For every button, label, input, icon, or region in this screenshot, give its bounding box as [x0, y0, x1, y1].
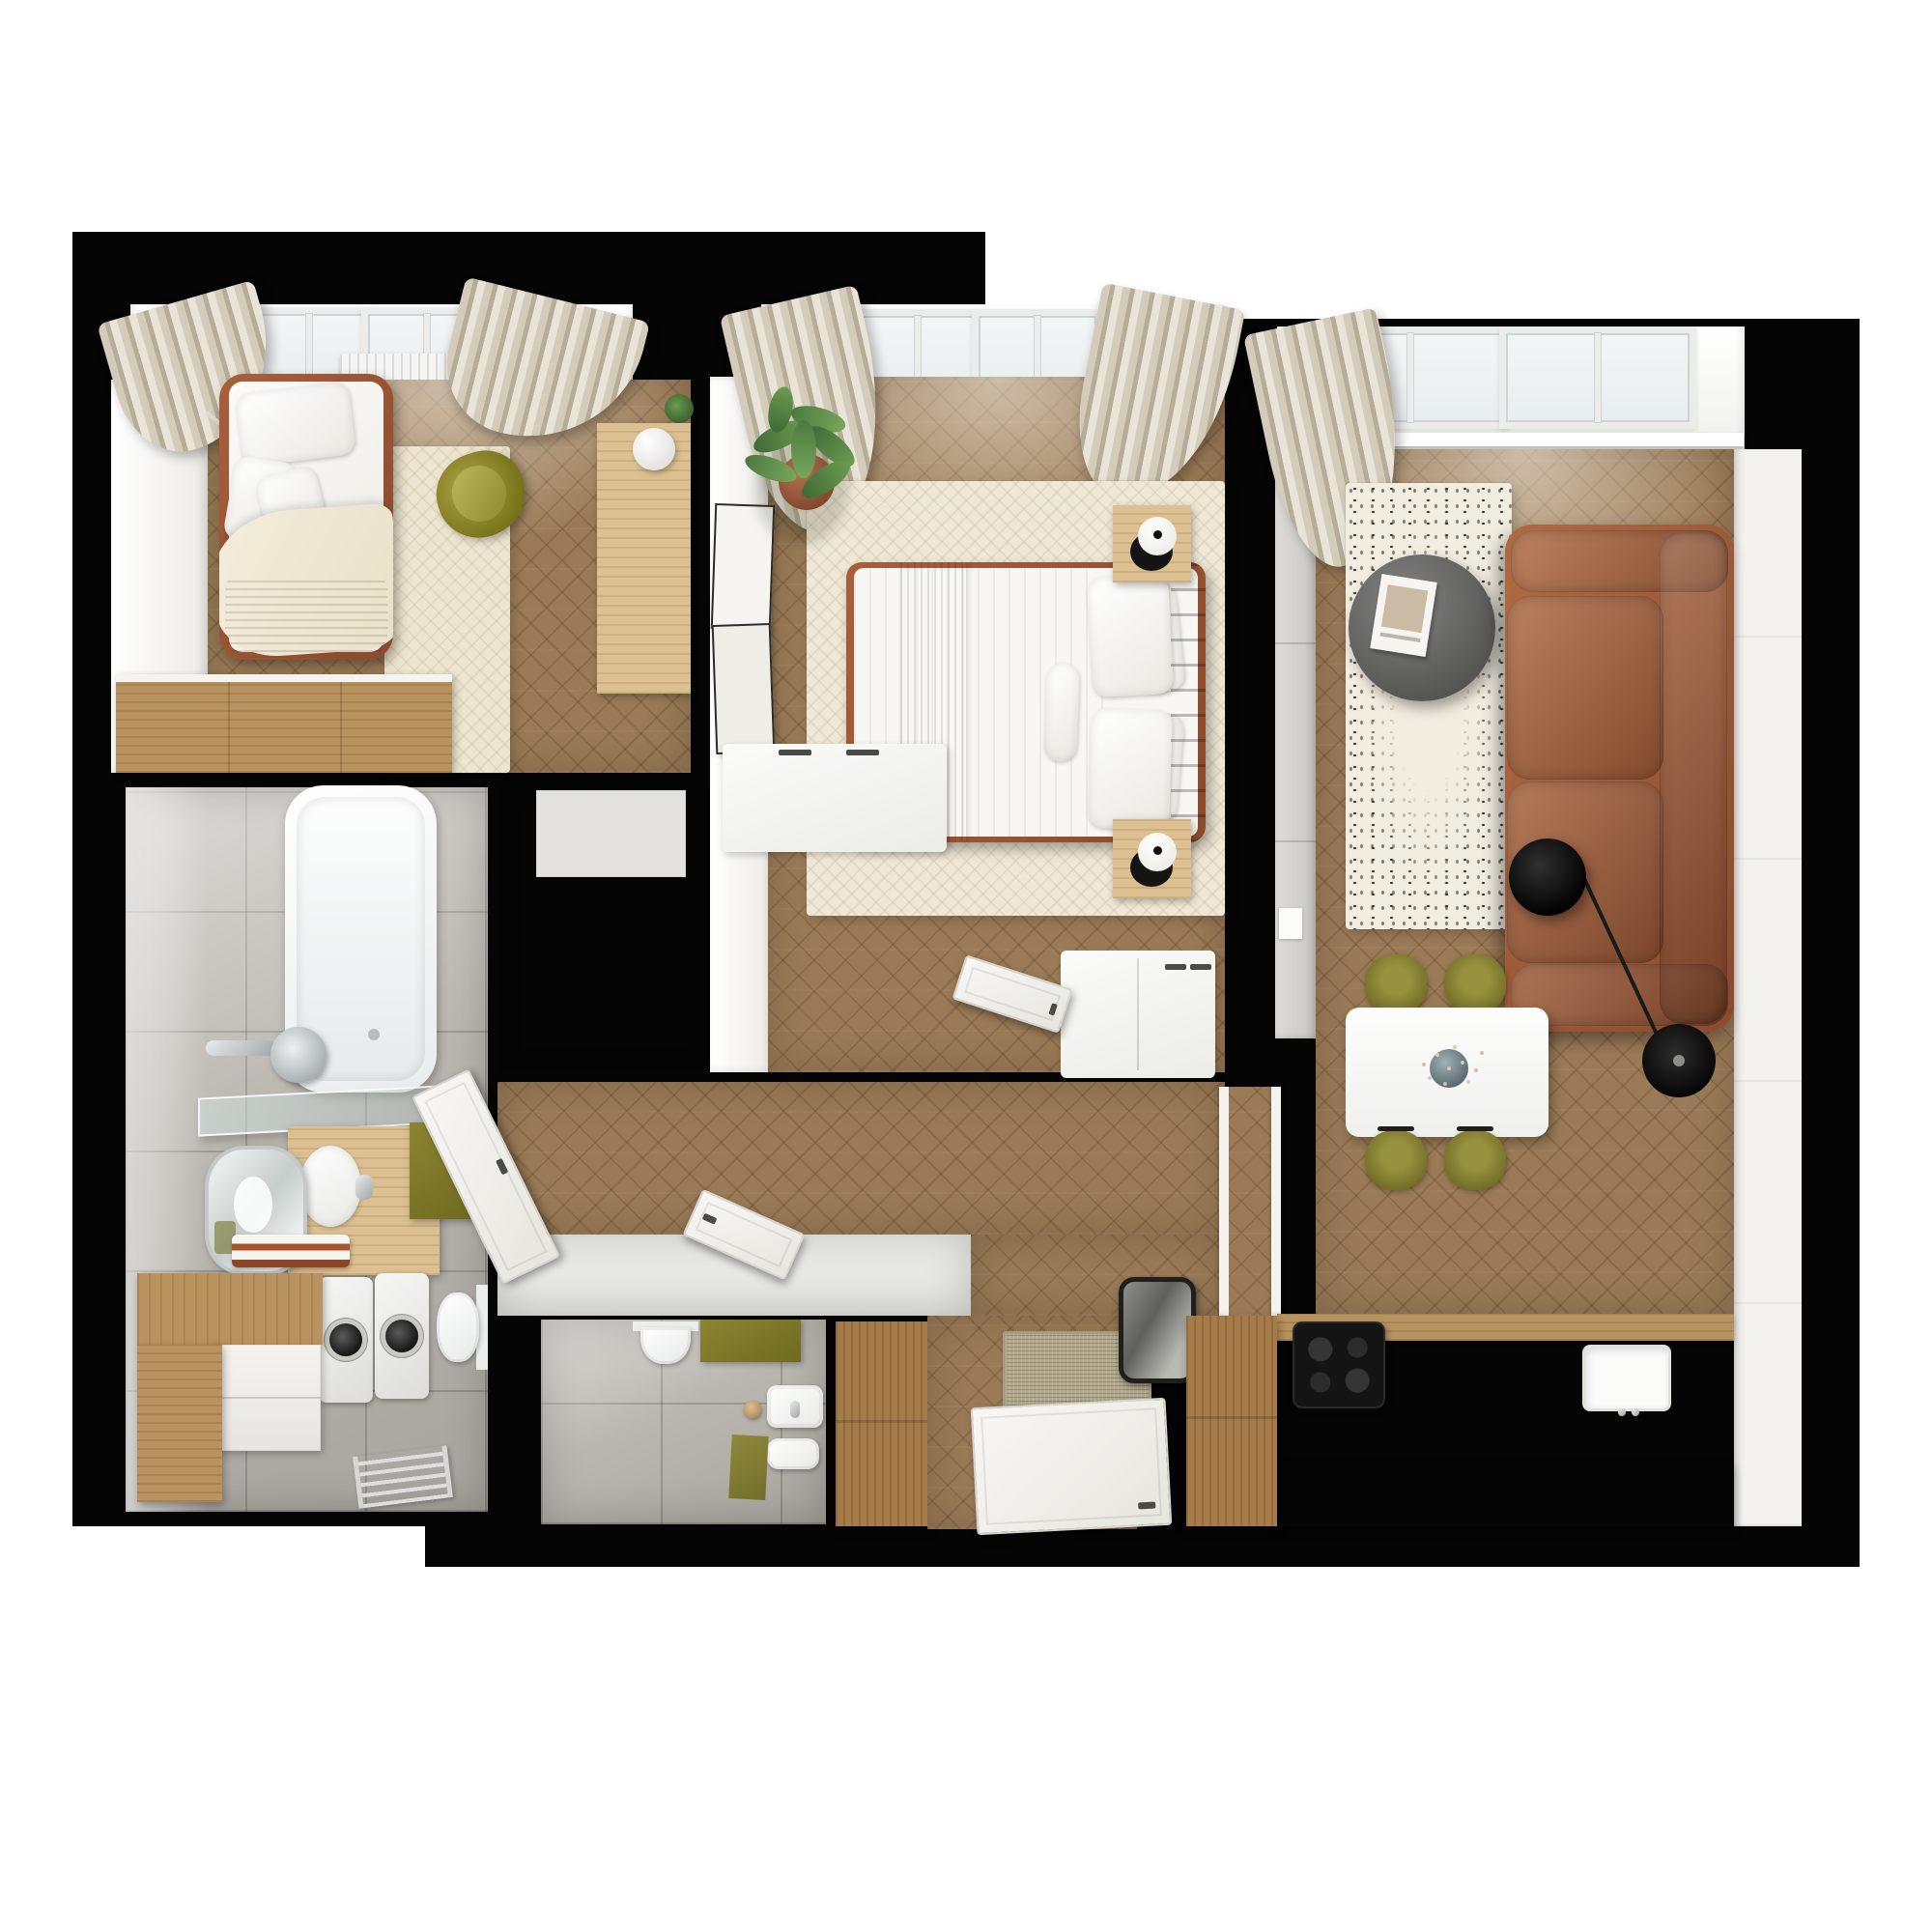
parquet-floor	[497, 1082, 1225, 1235]
guest-wc	[541, 1320, 826, 1524]
doorway-jamb	[1219, 1087, 1229, 1316]
shower-head	[270, 1027, 327, 1083]
bolster-cushion	[1043, 662, 1080, 761]
floor-lamp-shade	[1509, 838, 1586, 916]
olive-mat	[728, 1435, 768, 1500]
dresser-top-edge	[116, 674, 452, 682]
kitchen-sink	[1582, 1345, 1671, 1411]
cabinet-front	[211, 1345, 321, 1451]
dresser-seam	[1137, 958, 1139, 1070]
floor-plan	[0, 0, 1932, 1932]
dining-chair	[1365, 1130, 1427, 1190]
washing-machine	[319, 1277, 373, 1403]
dresser-handle	[1190, 964, 1211, 970]
dresser-handle	[1165, 964, 1186, 970]
entry-door-open	[971, 1398, 1173, 1535]
washbasin	[767, 1385, 823, 1428]
dresser	[116, 674, 452, 773]
cabinet-side	[137, 1345, 222, 1502]
vanity-sink	[299, 1146, 361, 1227]
dining-chair	[1444, 1130, 1506, 1190]
nightstand	[1113, 819, 1191, 898]
plant-leaf	[791, 420, 816, 478]
hallway	[497, 1082, 1225, 1316]
sofa-backrest	[1660, 532, 1727, 1024]
unit-seam	[1275, 642, 1316, 644]
shower-mixer	[206, 1040, 277, 1056]
olive-armchair	[437, 446, 529, 539]
faucet	[1618, 1408, 1626, 1416]
wall-panels	[1734, 449, 1802, 1526]
living-room	[1275, 327, 1802, 1567]
toilet	[633, 1321, 698, 1364]
toilet-bowl	[437, 1293, 479, 1362]
floor-lamp-base	[1642, 1024, 1716, 1097]
bench-handle	[779, 750, 811, 755]
kitchen-wood-block	[1186, 1316, 1277, 1526]
olive-blanket	[225, 577, 387, 652]
block-seam	[1186, 1416, 1277, 1419]
master-bedroom	[710, 304, 1225, 1072]
pillow	[1088, 708, 1173, 831]
white-dresser	[1061, 951, 1215, 1078]
door-handle	[1138, 1501, 1155, 1509]
ball-lamp	[633, 428, 675, 470]
towels	[232, 1235, 350, 1267]
lamp-detail	[1153, 530, 1162, 539]
cabinet-seam	[211, 1397, 321, 1399]
entry-mirror	[1119, 1277, 1196, 1383]
dryer	[375, 1273, 429, 1399]
faucet	[790, 1401, 800, 1418]
sofa-seat	[1507, 596, 1663, 780]
tub-drain	[368, 1029, 380, 1040]
wardrobe-panel	[536, 790, 686, 877]
wardrobe-seam	[836, 1420, 927, 1423]
dining-chair	[1444, 954, 1506, 1014]
pillow	[1087, 574, 1174, 697]
speckled-rug	[1346, 483, 1512, 929]
counter-top	[137, 1273, 323, 1345]
window	[1499, 327, 1696, 429]
bidet	[767, 1438, 819, 1469]
hallway-wardrobes	[497, 787, 710, 1072]
magazine	[1370, 574, 1436, 657]
unit-seam	[1275, 840, 1316, 842]
small-plant	[665, 394, 694, 423]
dresser-seam	[340, 682, 342, 773]
kids-bedroom	[111, 304, 691, 773]
bathroom	[126, 787, 488, 1512]
leaning-frame	[712, 623, 776, 754]
headboard	[1171, 562, 1206, 842]
single-bed	[219, 374, 393, 660]
entry-wardrobe	[836, 1321, 927, 1526]
toilet	[437, 1285, 488, 1370]
dining-chair	[1365, 954, 1427, 1014]
toilet-bowl	[640, 1327, 691, 1364]
kitchen-cabinet-front	[1277, 1461, 1734, 1526]
bench-handle	[846, 750, 879, 755]
dresser-seam	[228, 682, 230, 773]
pillow	[235, 381, 356, 468]
olive-panel	[700, 1320, 801, 1362]
bench	[723, 744, 947, 852]
lamp-detail	[1153, 846, 1162, 855]
faucet	[1632, 1408, 1639, 1416]
vase-sprigs	[1447, 1066, 1451, 1070]
magazine-line	[1379, 632, 1420, 642]
magazine-photo	[1381, 584, 1428, 633]
coffee-table	[1349, 554, 1495, 701]
lamp-base-center	[1673, 1055, 1685, 1066]
nightstand	[1113, 505, 1191, 582]
induction-hob	[1293, 1321, 1385, 1408]
wooden-stool	[744, 1401, 761, 1418]
thermostat	[1279, 908, 1302, 939]
mirror-reflection	[234, 1177, 272, 1233]
faucet	[355, 1175, 373, 1200]
potted-plant	[742, 375, 860, 554]
doorway-floor	[1229, 1087, 1271, 1316]
